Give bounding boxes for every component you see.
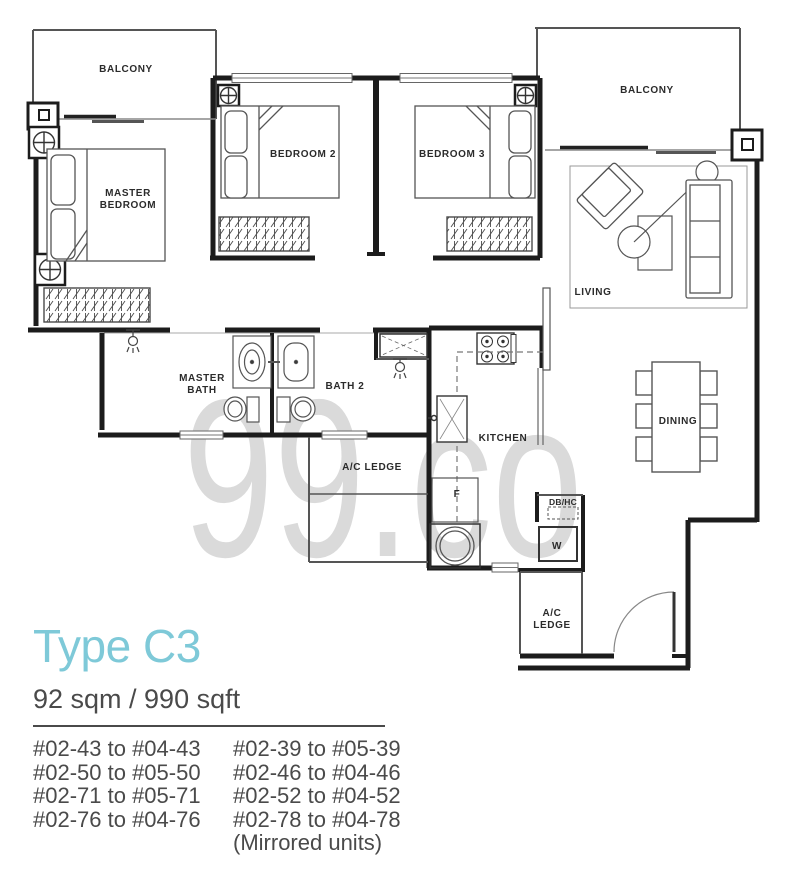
master-bath-toilet xyxy=(224,397,259,422)
corner-column-right xyxy=(732,130,762,160)
label-db-hc: DB/HC xyxy=(549,497,577,507)
circle-cross-icon xyxy=(218,85,239,106)
label-master-bedroom: MASTER xyxy=(105,188,151,199)
unit-range: #02-52 to #04-52 xyxy=(233,784,433,808)
label-ac-ledge-bottom: A/C xyxy=(542,608,561,619)
unit-range: #02-76 to #04-76 xyxy=(33,808,233,832)
entrance-door xyxy=(614,592,674,652)
unit-range: #02-50 to #05-50 xyxy=(33,761,233,785)
divider-line xyxy=(33,725,385,727)
caption-block: Type C3 92 sqm / 990 sqft #02-43 to #04-… xyxy=(33,622,453,855)
label-master-bedroom: BEDROOM xyxy=(100,200,156,211)
bath2-shower-ledge xyxy=(380,334,427,357)
coffee-table xyxy=(618,216,672,270)
label-kitchen: KITCHEN xyxy=(479,433,528,444)
unit-type-title: Type C3 xyxy=(33,622,453,670)
mirrored-units-note: (Mirrored units) xyxy=(233,831,433,855)
bedroom2-wardrobe xyxy=(219,217,309,251)
sliding-door-living-balcony xyxy=(545,148,736,153)
bath2-sink xyxy=(272,336,314,388)
label-bedroom3: BEDROOM 3 xyxy=(419,149,485,160)
floorplan-page: 99.co xyxy=(0,0,800,882)
sofa xyxy=(686,180,732,298)
unit-list-column-1: #02-43 to #04-43 #02-50 to #05-50 #02-71… xyxy=(33,737,233,855)
circle-cross-icon xyxy=(515,85,536,106)
label-bath2: BATH 2 xyxy=(326,381,365,392)
unit-range: #02-39 to #05-39 xyxy=(233,737,433,761)
armchair xyxy=(576,162,644,230)
unit-area: 92 sqm / 990 sqft xyxy=(33,684,453,715)
stove xyxy=(477,333,516,364)
label-fridge: F xyxy=(454,489,461,500)
watermark-text: 99.co xyxy=(183,352,583,604)
label-bedroom2: BEDROOM 2 xyxy=(270,149,336,160)
label-ac-ledge-mid: A/C LEDGE xyxy=(342,462,402,473)
master-wardrobe xyxy=(44,288,150,322)
label-master-bath: BATH xyxy=(187,385,216,396)
unit-list-column-2: #02-39 to #05-39 #02-46 to #04-46 #02-52… xyxy=(233,737,433,855)
label-living: LIVING xyxy=(575,287,612,298)
label-balcony-left: BALCONY xyxy=(99,64,153,75)
corner-column-left xyxy=(28,103,58,129)
master-bath-sink xyxy=(233,336,274,388)
label-master-bath: MASTER xyxy=(179,373,225,384)
unit-range: #02-43 to #04-43 xyxy=(33,737,233,761)
sliding-door-master-balcony xyxy=(58,117,216,122)
bedroom3-wardrobe xyxy=(447,217,532,251)
unit-number-list: #02-43 to #04-43 #02-50 to #05-50 #02-71… xyxy=(33,737,453,855)
unit-range: #02-46 to #04-46 xyxy=(233,761,433,785)
unit-range: #02-78 to #04-78 xyxy=(233,808,433,832)
bath2-toilet xyxy=(277,397,315,422)
label-washer: W xyxy=(552,541,562,552)
unit-range: #02-71 to #05-71 xyxy=(33,784,233,808)
label-ac-ledge-bottom: LEDGE xyxy=(533,620,570,631)
label-balcony-right: BALCONY xyxy=(620,85,674,96)
tv-console xyxy=(543,288,550,370)
label-dining: DINING xyxy=(659,416,698,427)
